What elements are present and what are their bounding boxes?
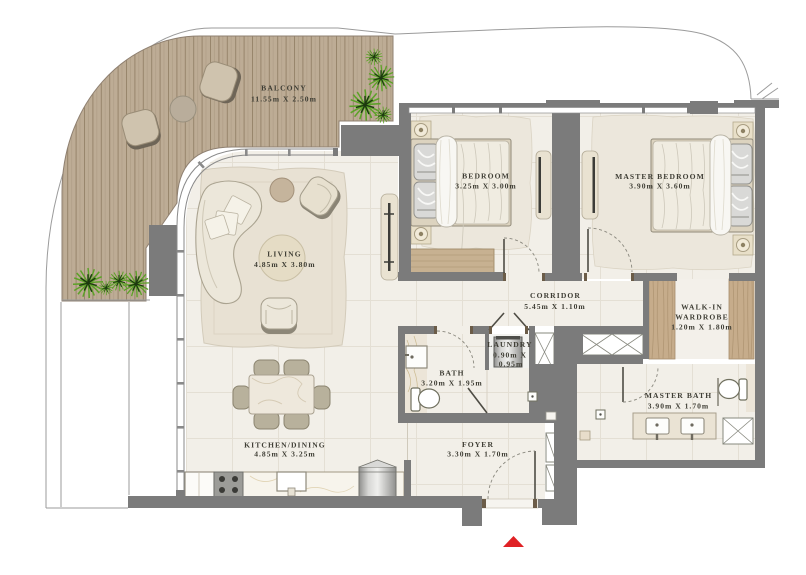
svg-text:0.90m X: 0.90m X [493,351,527,360]
svg-text:4.85m X 3.25m: 4.85m X 3.25m [254,449,316,458]
svg-text:LIVING: LIVING [267,250,301,259]
svg-text:3.90m X 3.60m: 3.90m X 3.60m [629,182,691,191]
svg-text:3.90m X 1.70m: 3.90m X 1.70m [648,401,710,410]
svg-text:FOYER: FOYER [462,440,494,449]
svg-text:MASTER BEDROOM: MASTER BEDROOM [615,172,705,181]
svg-text:BATH: BATH [439,369,464,378]
svg-text:KITCHEN/DINING: KITCHEN/DINING [244,440,326,449]
svg-text:0.95m: 0.95m [499,360,524,369]
svg-text:MASTER BATH: MASTER BATH [645,391,712,400]
svg-text:WALK-IN: WALK-IN [681,303,723,312]
svg-text:WARDROBE: WARDROBE [675,313,729,322]
svg-text:3.20m X 1.95m: 3.20m X 1.95m [421,379,483,388]
svg-text:CORRIDOR: CORRIDOR [530,291,581,300]
svg-text:BEDROOM: BEDROOM [462,172,510,181]
svg-text:5.45m X 1.10m: 5.45m X 1.10m [524,302,586,311]
svg-text:3.30m X 1.70m: 3.30m X 1.70m [447,450,509,459]
svg-text:11.55m X 2.50m: 11.55m X 2.50m [251,95,317,104]
svg-text:1.20m X 1.80m: 1.20m X 1.80m [671,323,733,332]
svg-text:3.25m X 3.00m: 3.25m X 3.00m [455,182,517,191]
svg-text:BALCONY: BALCONY [261,84,307,93]
svg-text:LAUNDRY: LAUNDRY [487,340,532,349]
svg-text:4.85m X 3.80m: 4.85m X 3.80m [254,260,316,269]
